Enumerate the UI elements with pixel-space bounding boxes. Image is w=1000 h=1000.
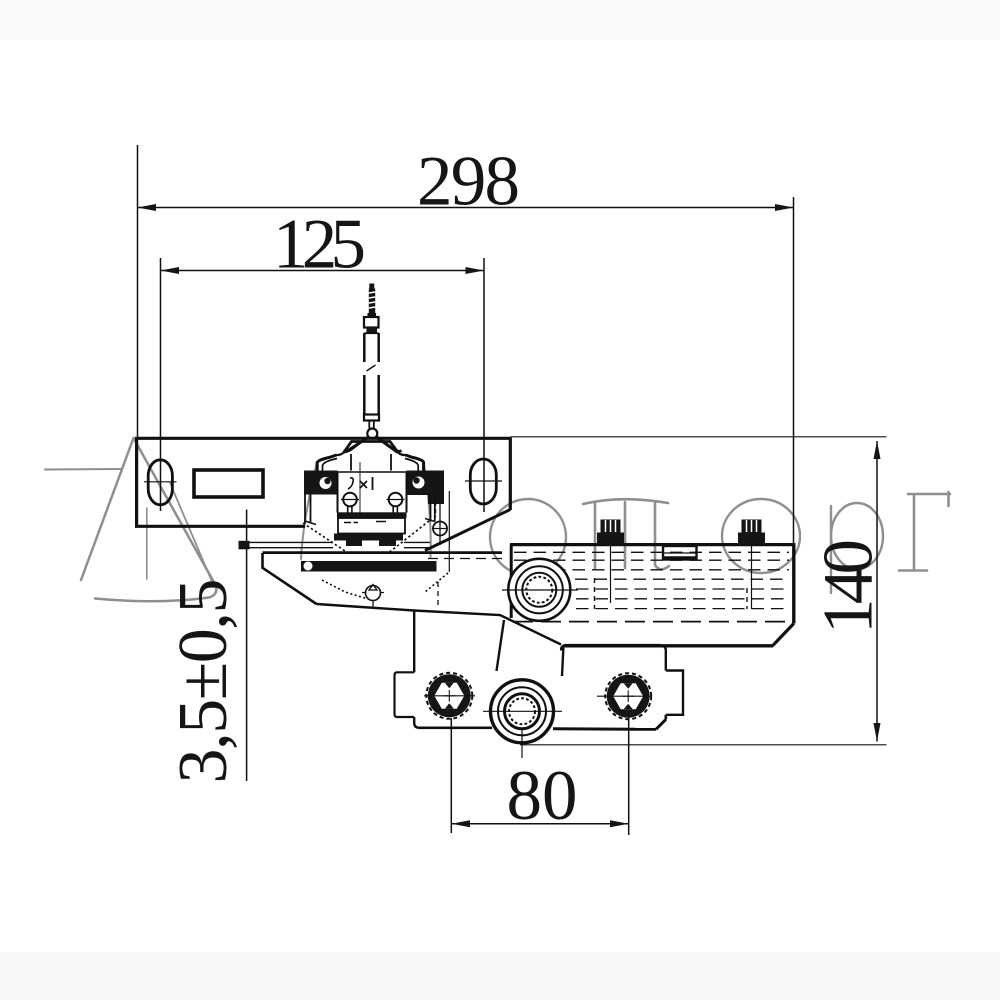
svg-text:140: 140 (810, 539, 888, 634)
svg-text:80: 80 (507, 757, 578, 835)
svg-text:298: 298 (417, 142, 520, 220)
svg-text:125: 125 (273, 205, 366, 283)
svg-text:3,5±0,5: 3,5±0,5 (165, 579, 242, 784)
